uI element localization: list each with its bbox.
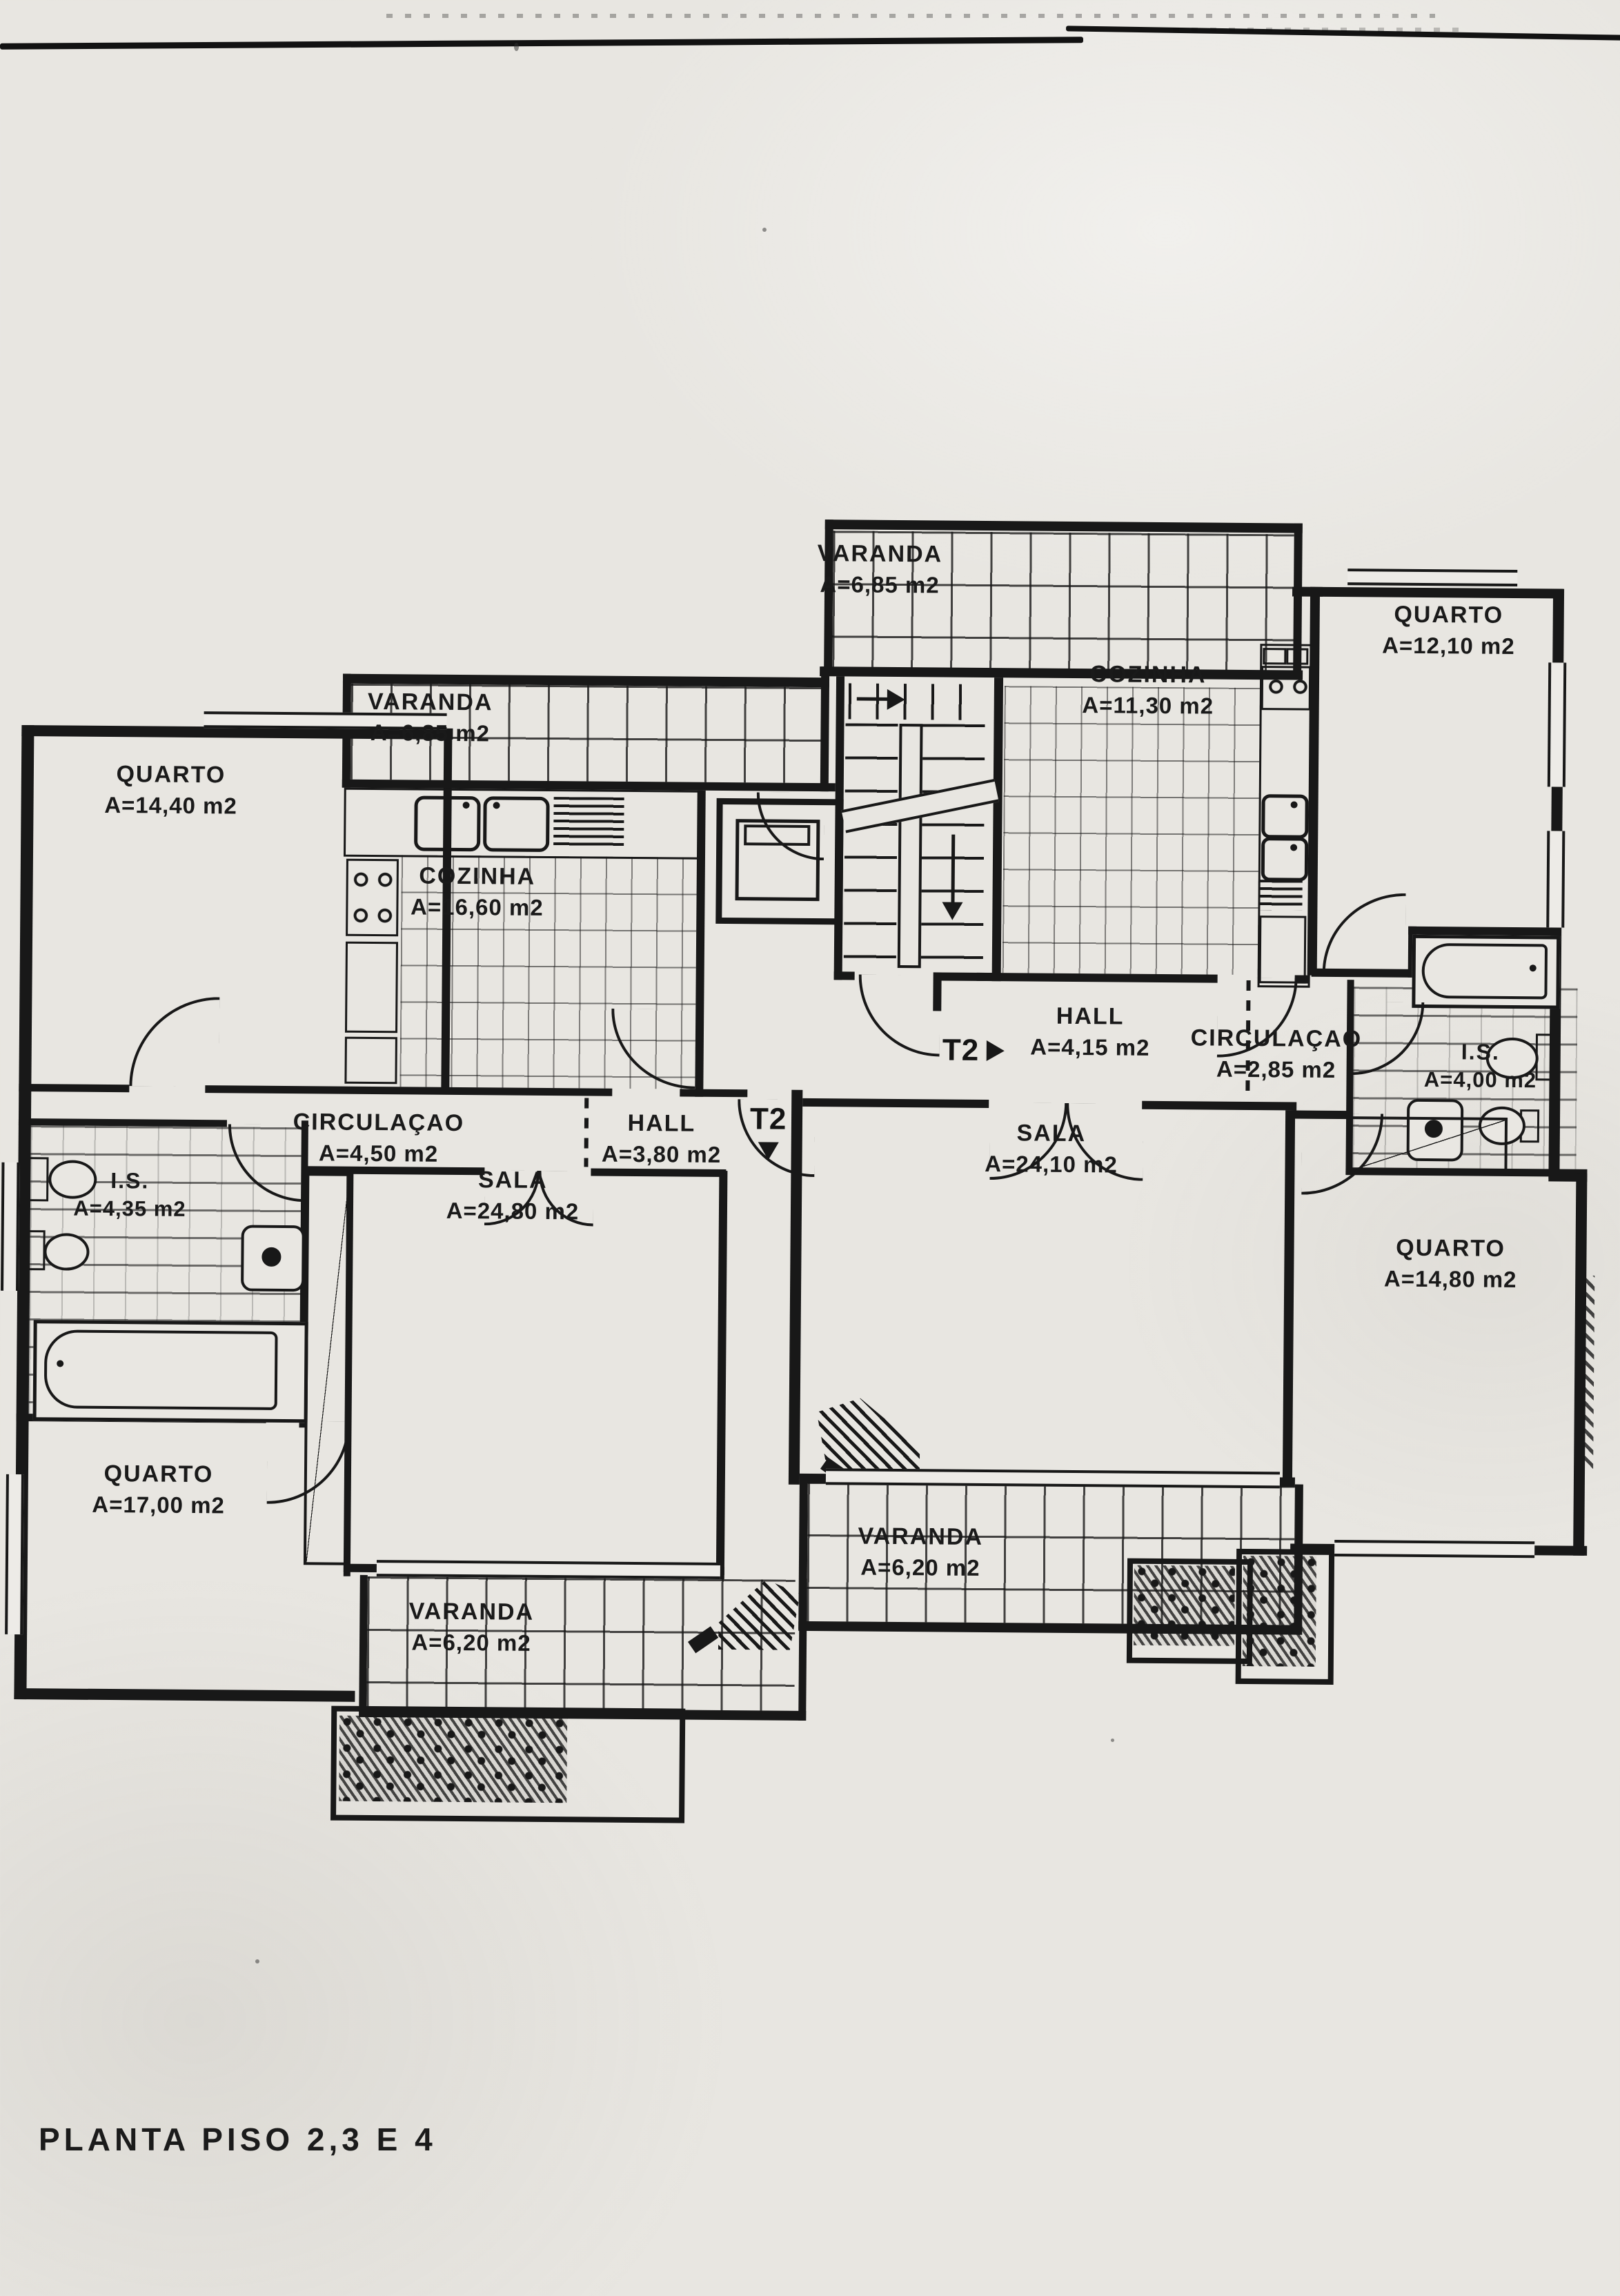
bidet-tank: [27, 1230, 45, 1270]
toilet-tank: [28, 1157, 49, 1201]
room-name: QUARTO: [116, 761, 226, 788]
door-arc-entrance-right: [858, 975, 940, 1057]
sink-drain-dot: [1291, 801, 1298, 808]
room-label-hall-left: HALL A=3,80 m2: [557, 1107, 765, 1170]
room-area: A=2,85 m2: [1158, 1053, 1393, 1085]
room-name: VARANDA: [818, 540, 943, 567]
wall: [716, 1171, 728, 1579]
room-area: A=17,00 m2: [44, 1489, 272, 1521]
wall: [820, 666, 829, 791]
window: [1, 1162, 19, 1291]
room-label-sala-right: SALA A=24,10 m2: [937, 1117, 1165, 1180]
wall: [798, 1481, 808, 1630]
stair-up-arrow-icon: [887, 689, 905, 710]
room-area: A=6,20 m2: [817, 1552, 1024, 1583]
room-label-quarto-top-right: QUARTO A=12,10 m2: [1334, 599, 1563, 662]
unit-type-label: T2: [942, 1033, 980, 1067]
kitchen-sink-icon: [1261, 837, 1309, 882]
wall: [939, 972, 1218, 982]
room-label-is-right: I.S. A=4,00 m2: [1404, 1037, 1557, 1096]
plants: [1243, 1556, 1316, 1667]
room-name: QUARTO: [1396, 1235, 1505, 1262]
room-name: CIRCULAÇAO: [293, 1109, 465, 1136]
window: [5, 1474, 24, 1634]
room-label-varanda-mid: VARANDA A=6,20 m2: [817, 1521, 1025, 1583]
arrow-right-icon: [987, 1040, 1005, 1061]
room-label-quarto-bottom-left: QUARTO A=17,00 m2: [44, 1458, 273, 1521]
floorplan-drawing: VARANDA A=6,85 m2 QUARTO A=12,10 m2 COZI…: [0, 0, 1620, 2296]
drainer-icon: [553, 797, 624, 847]
room-label-circulacao-left: CIRCULAÇAO A=4,50 m2: [261, 1107, 496, 1169]
bathtub-inner: [44, 1329, 278, 1410]
kitchen-appliance: [1263, 648, 1286, 664]
wall: [14, 1688, 355, 1702]
sink-drain-dot: [493, 802, 500, 809]
room-area: A=11,30 m2: [1031, 689, 1265, 721]
room-area: A=24,80 m2: [399, 1195, 626, 1227]
stair-flight-left: [844, 723, 898, 969]
kitchen-appliance: [1286, 648, 1308, 664]
room-label-varanda-top-left: VARANDA A=6,85 m2: [326, 686, 534, 749]
plan-title: PLANTA PISO 2,3 E 4: [39, 2121, 437, 2158]
room-name: I.S.: [1461, 1039, 1500, 1064]
room-area: A=4,35 m2: [47, 1195, 213, 1225]
room-area: A=14,80 m2: [1336, 1263, 1564, 1295]
sink-drain-dot: [1290, 844, 1297, 851]
room-name: COZINHA: [419, 863, 535, 890]
room-name: VARANDA: [368, 689, 493, 715]
drainer-icon: [1259, 880, 1302, 910]
unit-marker-t2-right: T2: [942, 1033, 980, 1068]
room-area: A=6,85 m2: [326, 717, 533, 749]
stove-hob-icon: [1261, 666, 1312, 711]
room-name: SALA: [478, 1167, 548, 1194]
room-name: HALL: [1056, 1003, 1125, 1030]
bathtub-drain-dot: [1530, 964, 1537, 971]
room-label-sala-left: SALA A=24,80 m2: [399, 1164, 627, 1227]
kitchen-sink-icon: [1261, 794, 1309, 839]
stair-stringer: [898, 724, 923, 968]
arrow-down-icon: [758, 1142, 779, 1160]
door-arc: [129, 996, 219, 1087]
scanned-floorplan-page: VARANDA A=6,85 m2 QUARTO A=12,10 m2 COZI…: [0, 0, 1620, 2296]
room-name: QUARTO: [1394, 602, 1503, 629]
kitchen-cabinet: [344, 1037, 397, 1085]
window: [377, 1560, 720, 1579]
room-label-cozinha-right: COZINHA A=11,30 m2: [1031, 658, 1266, 721]
door-arc: [1323, 893, 1406, 973]
room-label-is-left: I.S. A=4,35 m2: [47, 1165, 213, 1224]
window: [1546, 831, 1565, 927]
room-label-cozinha-left: COZINHA A=16,60 m2: [353, 860, 602, 923]
window: [1347, 568, 1517, 586]
sink-drain-dot: [463, 802, 470, 809]
room-name: VARANDA: [858, 1523, 983, 1550]
window: [1334, 1540, 1534, 1558]
stair-down-arrow-icon: [942, 902, 962, 920]
room-name: HALL: [627, 1110, 695, 1137]
kitchen-sink-icon: [414, 795, 481, 851]
room-area: A=4,00 m2: [1404, 1066, 1556, 1096]
window-shutter-hatch: [1579, 1276, 1594, 1469]
wall: [834, 971, 855, 980]
door-arc: [1301, 1114, 1383, 1196]
elevator-door-gap: [755, 906, 793, 913]
bathtub-inner: [1421, 943, 1548, 999]
wall: [1548, 1173, 1587, 1181]
room-label-quarto-top-left: QUARTO A=14,40 m2: [57, 758, 285, 821]
wall: [1294, 1485, 1303, 1635]
room-area: A=6,20 m2: [368, 1627, 575, 1659]
room-label-circulacao-right: CIRCULAÇAO A=2,85 m2: [1158, 1022, 1394, 1085]
wall: [1142, 1101, 1296, 1111]
closet: [304, 1173, 352, 1565]
kitchen-floor-right: [1002, 686, 1260, 975]
room-area: A=14,40 m2: [57, 789, 284, 821]
bidet-icon: [43, 1233, 89, 1271]
wall: [1283, 1110, 1295, 1487]
wall: [802, 1098, 989, 1108]
room-area: A=12,10 m2: [1334, 630, 1562, 662]
washbasin-drain: [261, 1247, 281, 1267]
room-name: QUARTO: [103, 1461, 213, 1487]
wall: [19, 1084, 129, 1092]
unit-marker-t2-left: T2: [750, 1102, 787, 1136]
plants: [339, 1716, 567, 1803]
bathtub-drain-dot: [57, 1360, 63, 1367]
unit-type-label: T2: [750, 1102, 787, 1136]
wall: [695, 1089, 747, 1098]
room-area: A=24,10 m2: [937, 1148, 1165, 1180]
room-name: SALA: [1016, 1120, 1086, 1147]
stair-arrow-stem: [857, 697, 889, 701]
kitchen-cabinet: [345, 942, 398, 1033]
room-label-varanda-bottom-left: VARANDA A=6,20 m2: [368, 1596, 575, 1659]
wall: [1314, 587, 1563, 599]
room-area: A=6,85 m2: [776, 568, 983, 600]
room-area: A=16,60 m2: [353, 891, 601, 923]
stair-upper-flight: [849, 683, 985, 720]
room-name: CIRCULAÇAO: [1191, 1025, 1363, 1052]
room-label-varanda-top: VARANDA A=6,85 m2: [776, 538, 984, 601]
room-name: I.S.: [110, 1168, 149, 1193]
room-label-quarto-bottom-right: QUARTO A=14,80 m2: [1336, 1232, 1565, 1295]
room-name: COZINHA: [1089, 661, 1206, 688]
window: [1548, 662, 1566, 786]
wall: [359, 1575, 368, 1716]
stair-arrow-stem: [951, 835, 955, 904]
kitchen-cabinet: [1259, 916, 1307, 984]
room-name: VARANDA: [409, 1598, 535, 1625]
wall: [992, 677, 1003, 981]
